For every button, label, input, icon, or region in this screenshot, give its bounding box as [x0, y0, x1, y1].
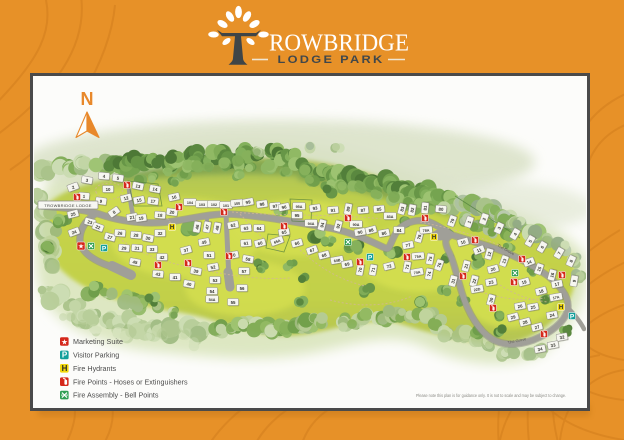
- svg-text:H: H: [432, 235, 436, 241]
- svg-text:75A: 75A: [415, 254, 422, 259]
- svg-text:Fire Hydrants: Fire Hydrants: [73, 364, 117, 373]
- svg-text:53: 53: [213, 278, 218, 283]
- svg-text:P: P: [368, 254, 373, 261]
- svg-text:101: 101: [223, 204, 229, 208]
- svg-text:N: N: [81, 89, 94, 109]
- svg-text:56: 56: [240, 286, 245, 291]
- svg-text:★: ★: [78, 243, 84, 251]
- svg-text:★: ★: [61, 337, 68, 346]
- svg-text:103: 103: [199, 203, 205, 207]
- svg-text:100: 100: [234, 202, 240, 207]
- svg-text:94A: 94A: [308, 222, 315, 226]
- svg-text:42: 42: [160, 255, 165, 260]
- svg-text:55: 55: [231, 300, 236, 305]
- svg-text:Fire Points - Hoses or Extingu: Fire Points - Hoses or Extinguishers: [73, 377, 188, 386]
- svg-text:54A: 54A: [209, 298, 216, 302]
- svg-text:H: H: [170, 225, 174, 231]
- svg-text:83A: 83A: [387, 215, 394, 219]
- svg-text:32: 32: [158, 231, 163, 236]
- svg-text:Fire Assembly - Bell Points: Fire Assembly - Bell Points: [73, 391, 159, 400]
- svg-text:P: P: [570, 313, 575, 320]
- svg-text:78A: 78A: [423, 228, 430, 233]
- svg-text:54: 54: [210, 289, 215, 294]
- svg-text:10: 10: [106, 187, 111, 192]
- svg-text:Marketing Suite: Marketing Suite: [73, 337, 123, 346]
- svg-text:LODGE PARK: LODGE PARK: [278, 54, 385, 66]
- svg-text:84: 84: [397, 228, 402, 233]
- svg-text:41: 41: [173, 275, 178, 280]
- svg-text:H: H: [559, 305, 563, 311]
- svg-text:P: P: [102, 245, 107, 252]
- svg-text:95A: 95A: [296, 205, 303, 209]
- svg-text:95: 95: [295, 213, 300, 218]
- svg-text:Please note this plan is for g: Please note this plan is for guidance on…: [416, 393, 566, 398]
- svg-text:51: 51: [207, 253, 212, 258]
- svg-text:H: H: [62, 364, 68, 373]
- svg-text:ROWBRIDGE: ROWBRIDGE: [269, 31, 409, 57]
- svg-text:TROWBRIDGE LODGE: TROWBRIDGE LODGE: [44, 203, 92, 208]
- svg-text:104: 104: [187, 201, 194, 205]
- svg-text:P: P: [62, 351, 68, 360]
- svg-text:90A: 90A: [353, 223, 360, 227]
- svg-text:57: 57: [242, 269, 247, 274]
- svg-text:102: 102: [211, 203, 217, 207]
- svg-text:64: 64: [257, 226, 262, 231]
- svg-text:33: 33: [150, 247, 155, 252]
- svg-text:Visitor Parking: Visitor Parking: [73, 351, 119, 360]
